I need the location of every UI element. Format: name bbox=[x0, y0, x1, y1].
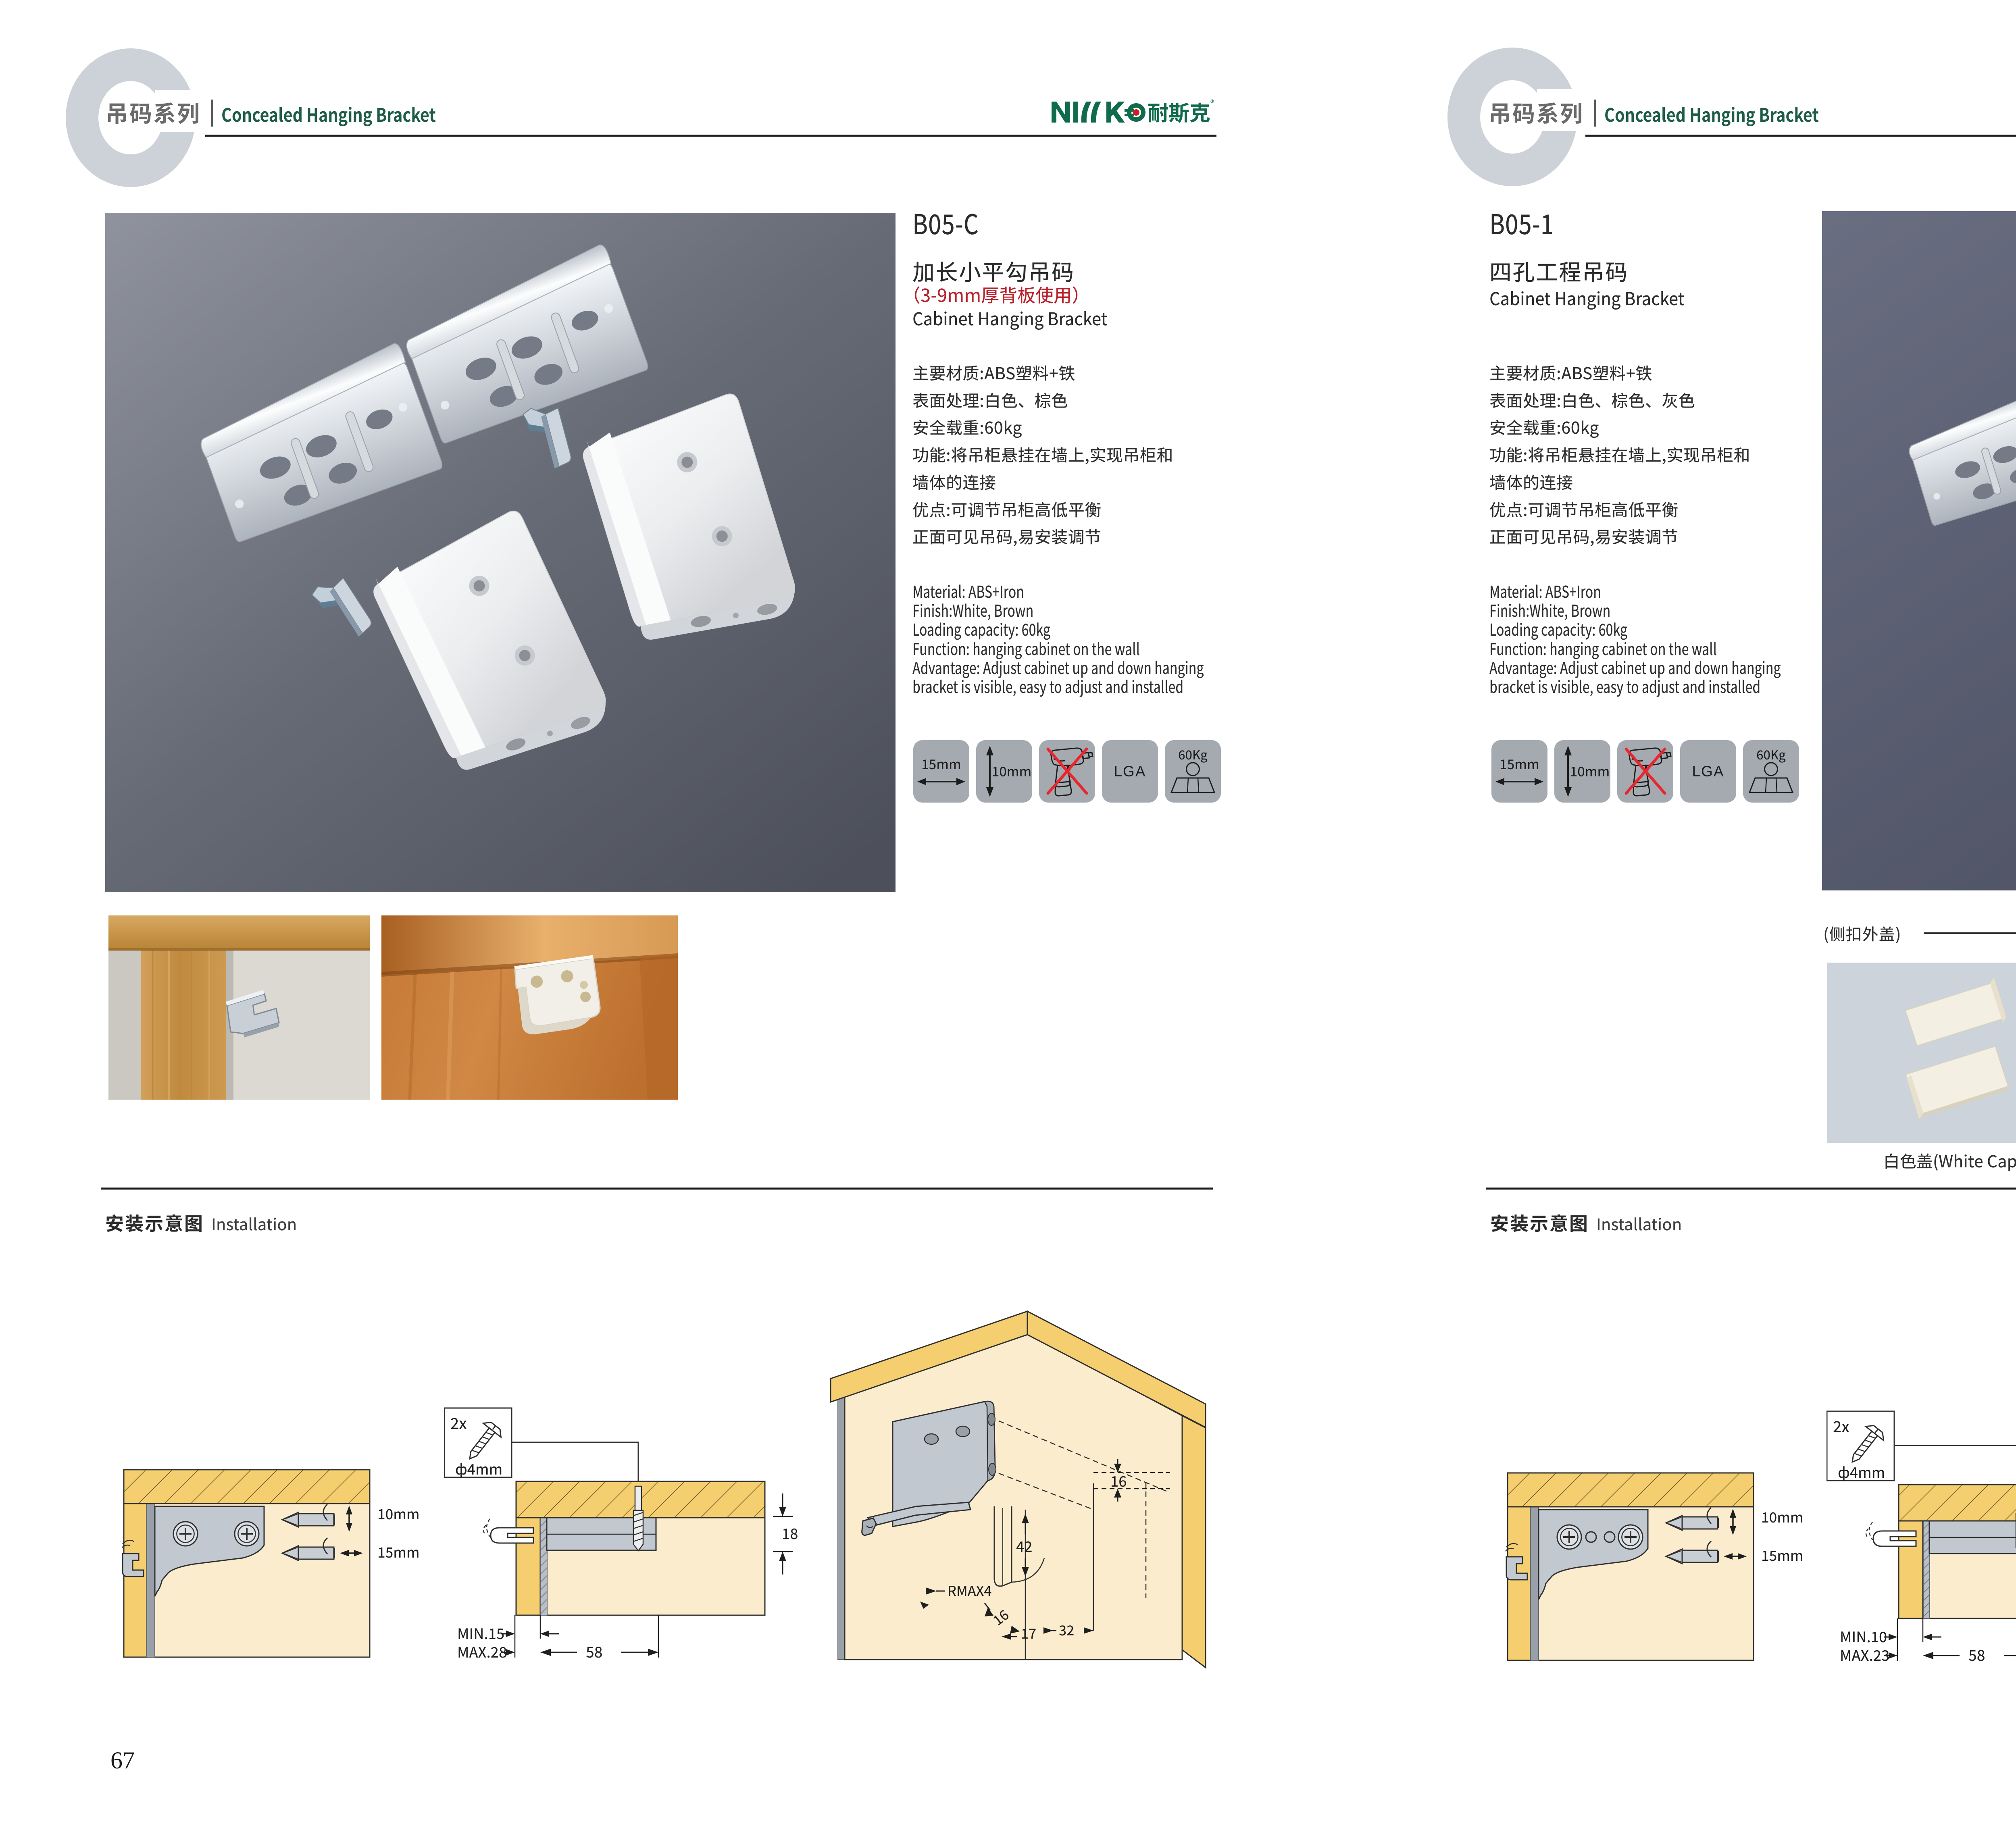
svg-text:58: 58 bbox=[586, 1640, 603, 1662]
svg-text:10mm: 10mm bbox=[1761, 1506, 1804, 1527]
svg-text:ф4mm: ф4mm bbox=[455, 1458, 502, 1479]
svg-text:LGA: LGA bbox=[1692, 763, 1724, 780]
svg-text:2x: 2x bbox=[450, 1411, 467, 1433]
svg-text:MIN.10: MIN.10 bbox=[1840, 1626, 1887, 1647]
svg-text:10mm: 10mm bbox=[1570, 761, 1610, 780]
svg-text:10mm: 10mm bbox=[992, 761, 1032, 780]
svg-text:15mm: 15mm bbox=[921, 754, 961, 773]
svg-text:60Kg: 60Kg bbox=[1178, 745, 1208, 763]
svg-text:42: 42 bbox=[1016, 1535, 1032, 1556]
svg-text:MIN.15: MIN.15 bbox=[457, 1622, 504, 1643]
svg-text:耐斯克: 耐斯克 bbox=[1148, 99, 1210, 127]
svg-text:17: 17 bbox=[1021, 1623, 1036, 1643]
svg-text:15mm: 15mm bbox=[377, 1541, 420, 1562]
svg-text:16: 16 bbox=[1110, 1470, 1127, 1491]
svg-text:RMAX4: RMAX4 bbox=[948, 1580, 991, 1600]
svg-text:MAX.28: MAX.28 bbox=[457, 1641, 507, 1662]
svg-text:2x: 2x bbox=[1833, 1414, 1849, 1437]
svg-text:15mm: 15mm bbox=[1761, 1545, 1804, 1565]
svg-text:®: ® bbox=[1210, 99, 1214, 108]
svg-text:MAX.23: MAX.23 bbox=[1840, 1644, 1889, 1665]
svg-text:15mm: 15mm bbox=[1500, 754, 1539, 773]
svg-text:ф4mm: ф4mm bbox=[1838, 1461, 1885, 1482]
svg-text:32: 32 bbox=[1059, 1620, 1074, 1639]
svg-text:60Kg: 60Kg bbox=[1756, 745, 1786, 763]
svg-text:18: 18 bbox=[782, 1523, 798, 1543]
svg-text:58: 58 bbox=[1968, 1643, 1985, 1665]
svg-text:10mm: 10mm bbox=[377, 1503, 420, 1524]
svg-text:LGA: LGA bbox=[1114, 763, 1146, 780]
